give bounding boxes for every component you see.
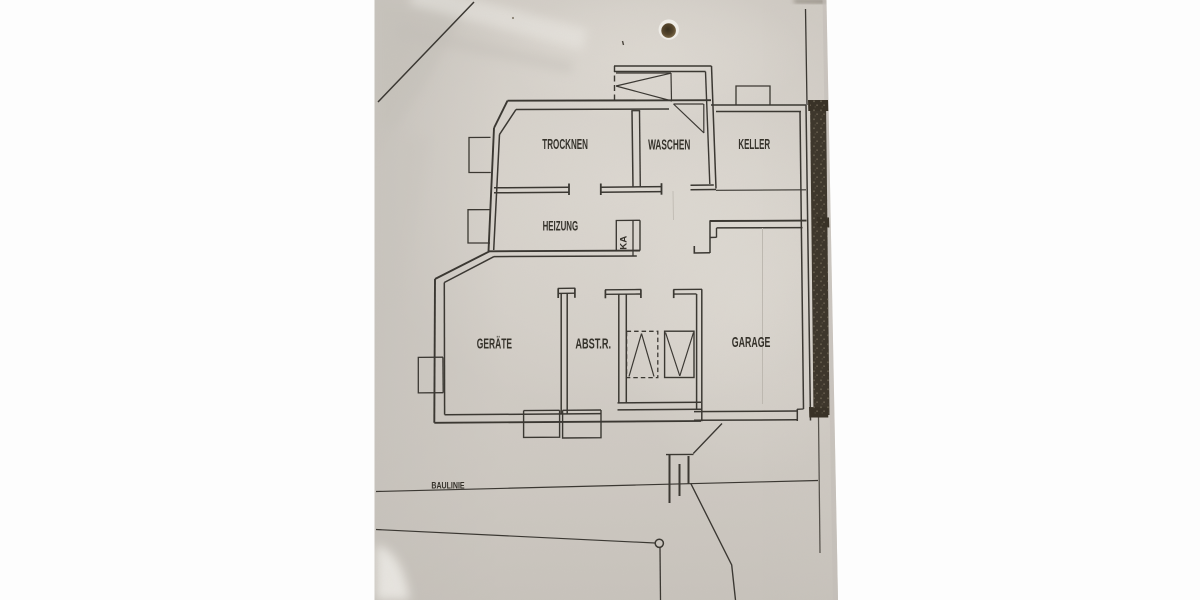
svg-text:HEIZUNG: HEIZUNG	[543, 217, 579, 233]
svg-text:KELLER: KELLER	[738, 136, 770, 153]
svg-text:BAULINIE: BAULINIE	[431, 480, 465, 491]
svg-text:ABST.R.: ABST.R.	[575, 336, 611, 352]
svg-text:GERÄTE: GERÄTE	[477, 335, 512, 352]
svg-text:KA: KA	[618, 235, 628, 250]
svg-text:TROCKNEN: TROCKNEN	[542, 136, 588, 153]
svg-text:GARAGE: GARAGE	[732, 335, 771, 351]
svg-text:WASCHEN: WASCHEN	[648, 136, 690, 153]
